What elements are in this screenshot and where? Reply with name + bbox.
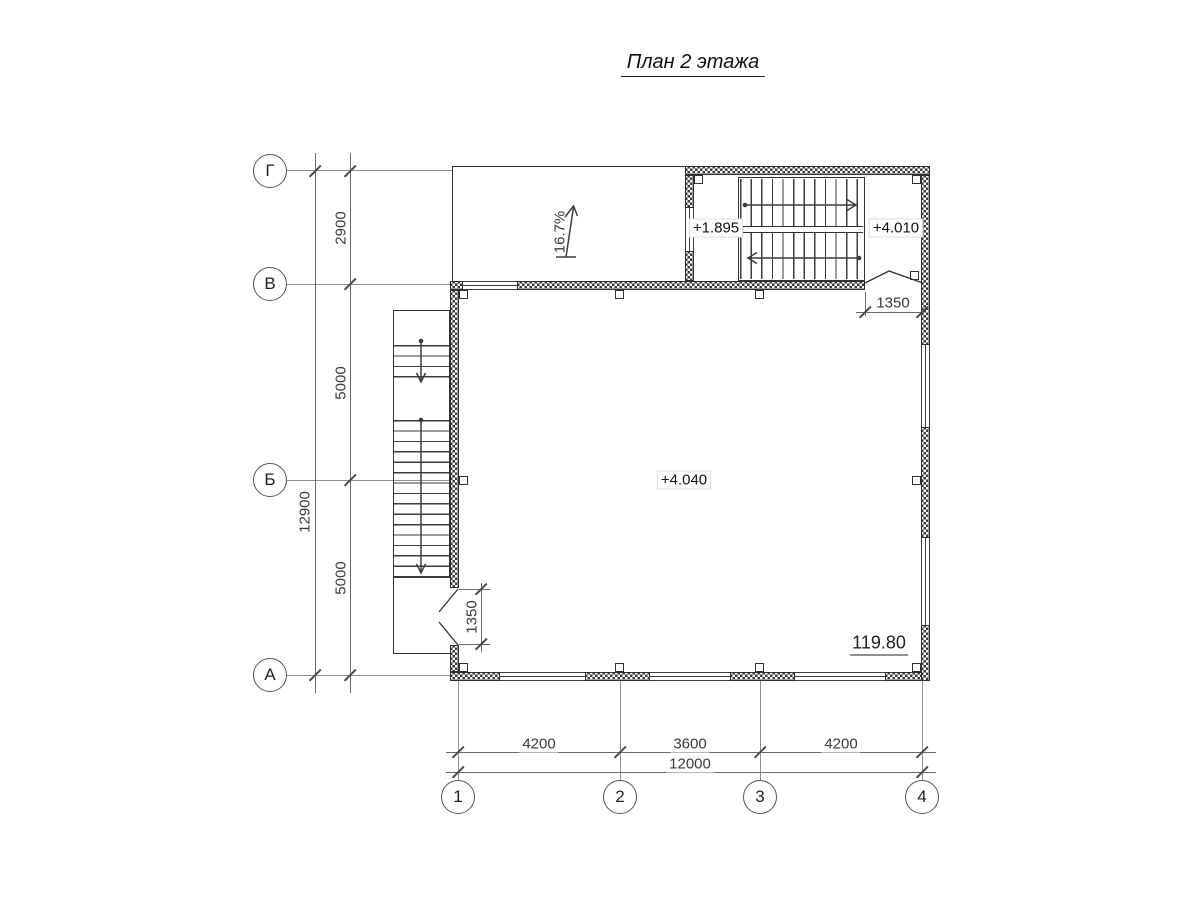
stair-direction-arrow-left <box>743 250 863 266</box>
axis-line-1 <box>458 681 459 780</box>
column-mark <box>912 663 921 672</box>
column-mark <box>755 290 764 299</box>
drawing-title: План 2 этажа <box>621 51 765 77</box>
axis-bubble-2: 2 <box>603 780 637 814</box>
column-mark <box>912 476 921 485</box>
dim-left-total: 12900 <box>297 488 314 536</box>
dim-bottom-seg-3: 4200 <box>821 736 860 753</box>
level-mark-stair-upper: +4.010 <box>869 219 923 238</box>
wall-v-corner <box>450 281 463 290</box>
window <box>795 672 885 681</box>
door-swing-left <box>435 585 461 649</box>
wall-left-lower <box>450 645 459 672</box>
axis-bubble-4: 4 <box>905 780 939 814</box>
axis-bubble-3: 3 <box>743 780 777 814</box>
stair-middle-stringer <box>740 226 863 233</box>
dim-line-left-total <box>315 153 316 693</box>
wall-a-pier-1 <box>450 672 500 681</box>
column-mark <box>615 290 624 299</box>
level-mark-stair-landing: +1.895 <box>689 219 743 238</box>
wall-a-pier-3 <box>730 672 795 681</box>
axis-line-2 <box>620 681 621 780</box>
dim-line-left-segments <box>350 153 351 693</box>
wall-right-upper <box>921 175 930 345</box>
door-swing-stairwell <box>862 266 926 286</box>
axis-bubble-1: 1 <box>441 780 475 814</box>
column-mark <box>912 175 921 184</box>
axis-bubble-a: А <box>253 658 287 692</box>
window <box>463 281 517 290</box>
wall-right-lower <box>921 625 930 681</box>
stair-direction-arrow-down-1 <box>414 337 428 387</box>
wall-v-main <box>517 281 865 290</box>
axis-line-g <box>287 170 452 171</box>
wall-right-middle <box>921 427 930 538</box>
axis-bubble-b: Б <box>253 463 287 497</box>
column-mark <box>755 663 764 672</box>
wall-top-stairwell <box>685 166 930 175</box>
floor-plan-sheet: План 2 этажа 2900 5000 5000 12900 4200 3… <box>0 0 1200 900</box>
axis-bubble-v: В <box>253 267 287 301</box>
axis-line-3 <box>760 681 761 780</box>
wall-left-upper <box>450 290 459 588</box>
dim-left-seg-2: 5000 <box>333 363 350 402</box>
dim-ext-line <box>459 589 490 590</box>
dim-bottom-seg-2: 3600 <box>670 736 709 753</box>
window <box>921 538 930 625</box>
dim-stair-door: 1350 <box>873 295 912 312</box>
axis-line-4 <box>922 681 923 780</box>
window <box>500 672 585 681</box>
axis-bubble-g: Г <box>253 154 287 188</box>
wall-a-pier-2 <box>585 672 650 681</box>
ramp-slope-label: 16.7% <box>552 208 569 257</box>
ramp-edge-top <box>452 166 685 167</box>
dim-bottom-total: 12000 <box>666 756 714 773</box>
window <box>650 672 730 681</box>
stair-direction-arrow-right <box>741 197 861 213</box>
column-mark <box>459 290 468 299</box>
level-mark-floor: +4.040 <box>657 471 711 490</box>
axis-line-v <box>287 284 450 285</box>
dim-bottom-seg-1: 4200 <box>519 736 558 753</box>
dim-left-door: 1350 <box>464 597 481 636</box>
column-mark <box>615 663 624 672</box>
wall-stairwell-left-upper <box>685 175 694 208</box>
wall-stairwell-left-lower <box>685 251 694 281</box>
column-mark <box>459 663 468 672</box>
window <box>921 345 930 427</box>
stair-direction-arrow-down-2 <box>414 415 428 580</box>
room-area-label: 119.80 <box>850 633 908 656</box>
dim-left-seg-1: 2900 <box>333 208 350 247</box>
column-mark <box>694 175 703 184</box>
ramp-edge-left <box>452 166 453 281</box>
dim-left-seg-3: 5000 <box>333 558 350 597</box>
dim-ext-line <box>459 644 490 645</box>
column-mark <box>459 476 468 485</box>
